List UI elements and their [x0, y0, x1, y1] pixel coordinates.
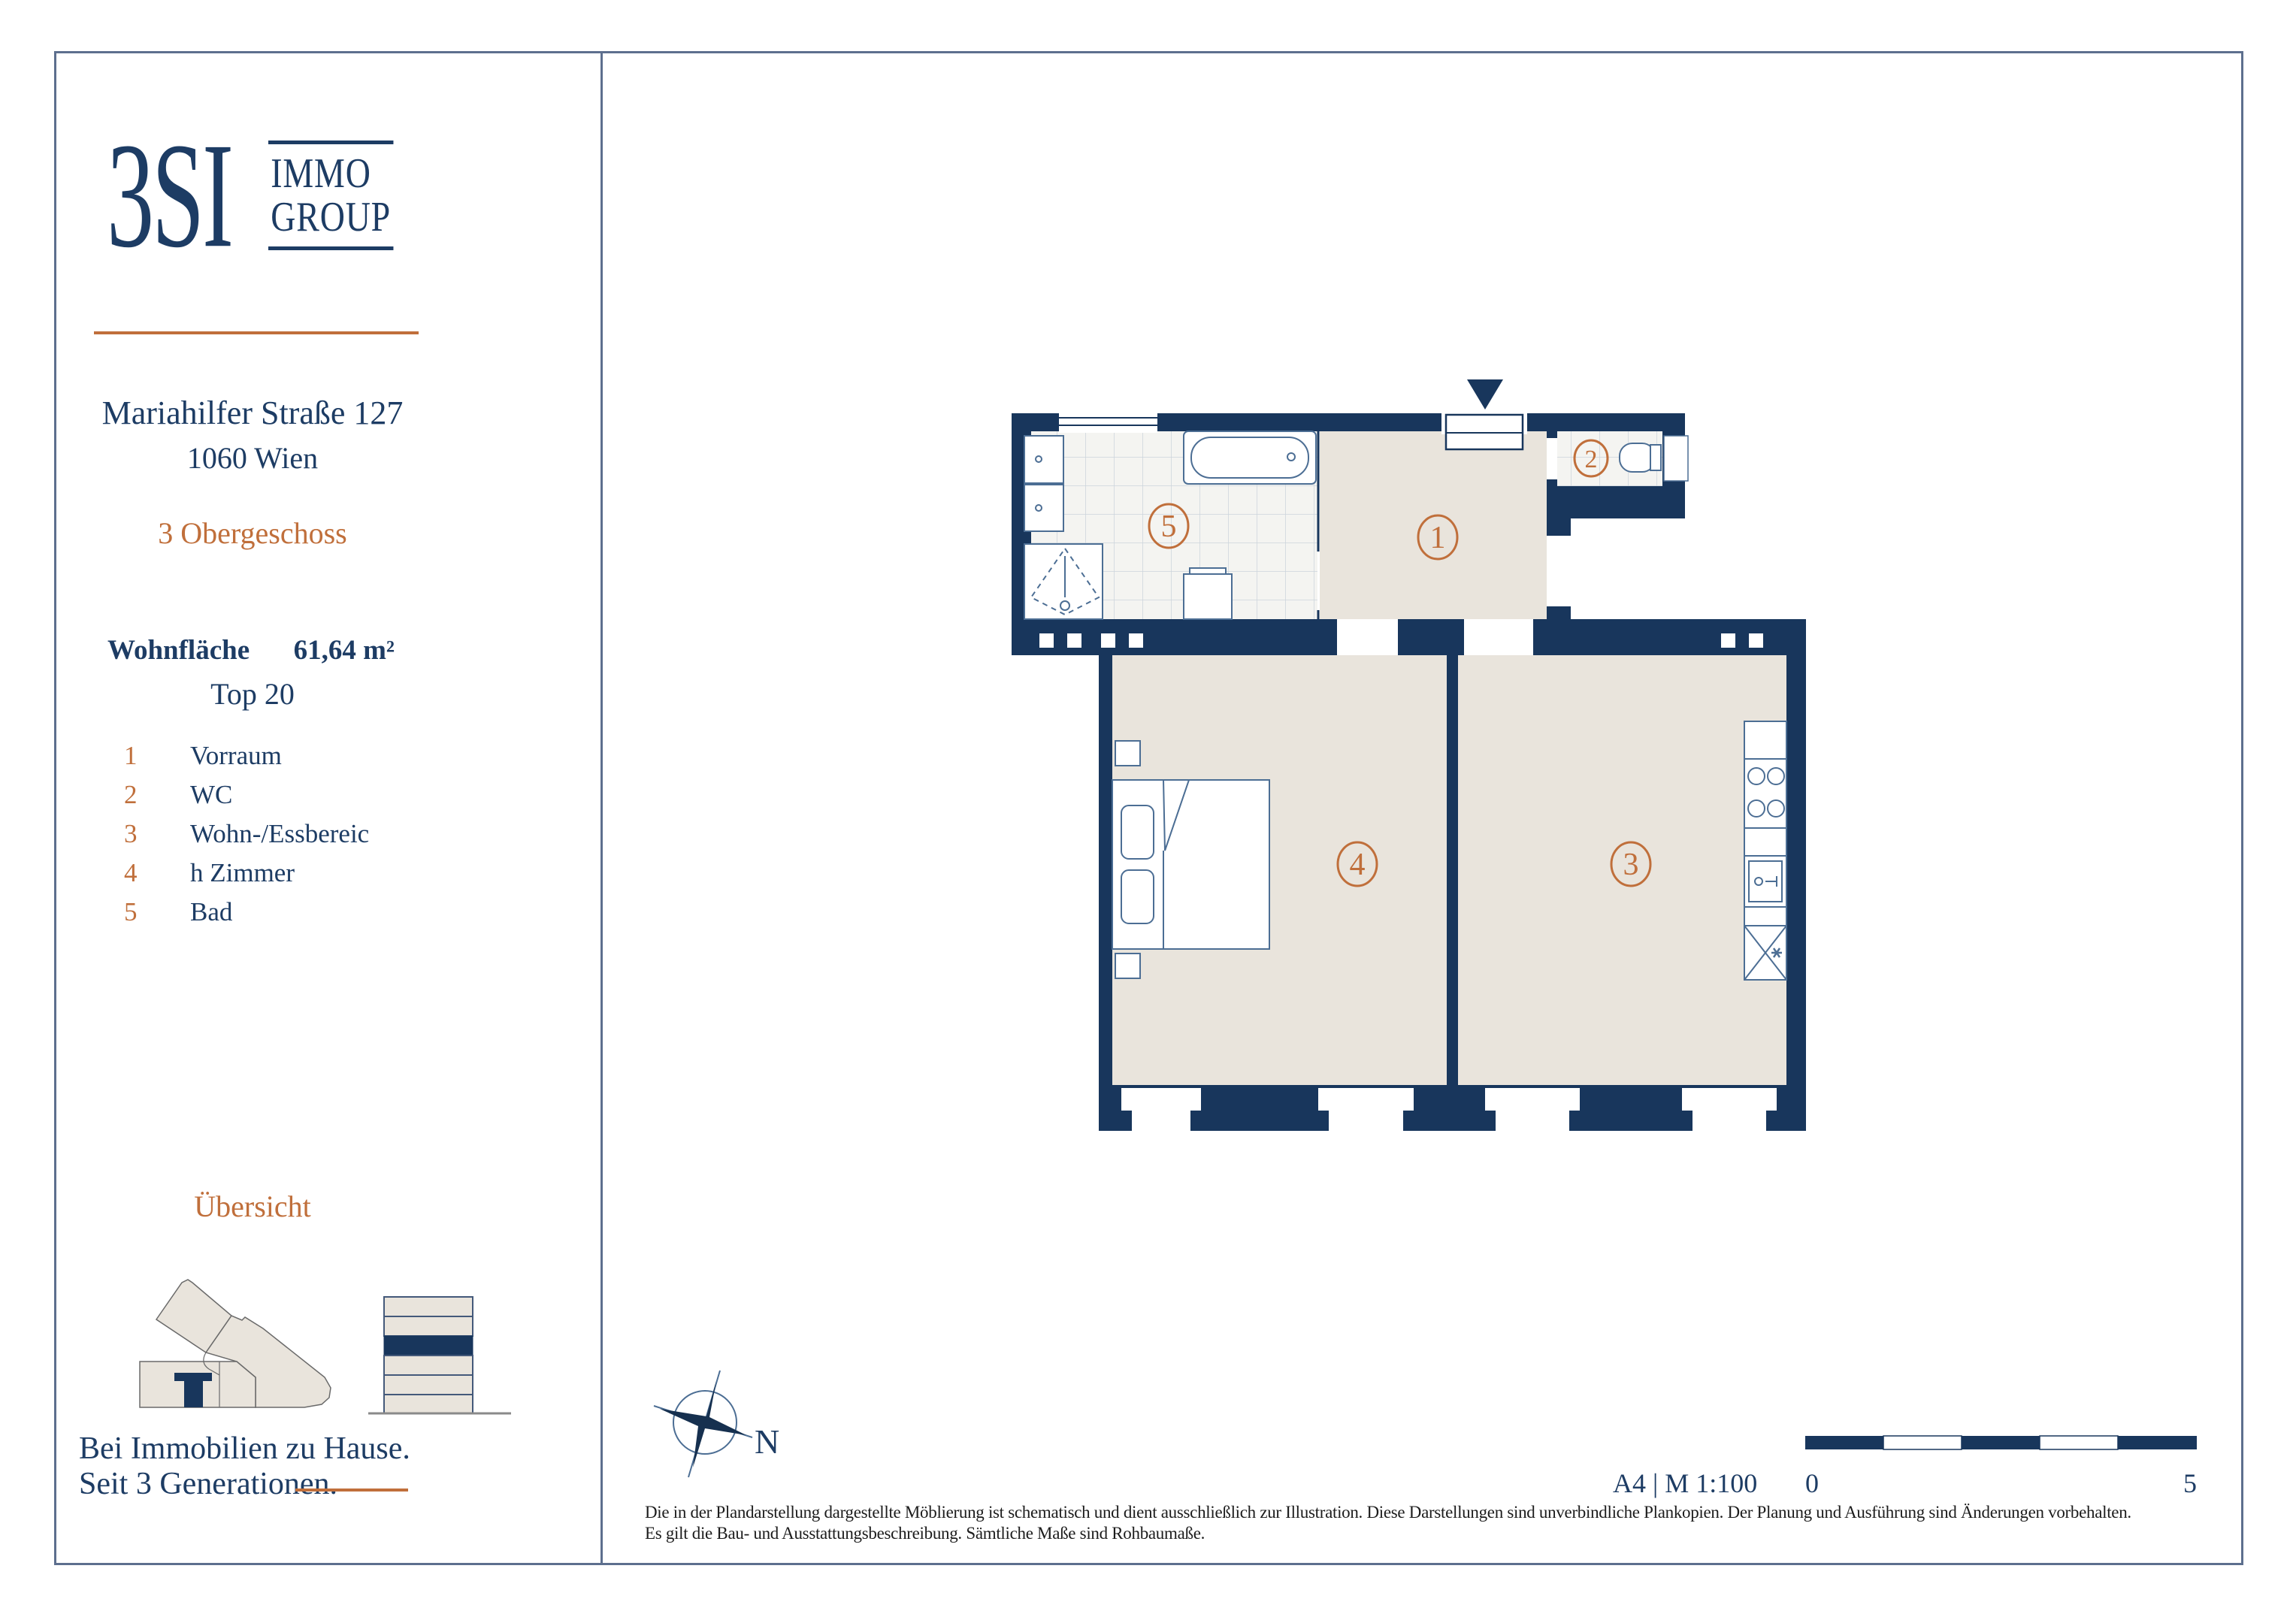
window-reveal	[1569, 1111, 1580, 1131]
window-reveal	[1190, 1111, 1201, 1131]
washbasin-cabinet	[1024, 436, 1063, 483]
room-3-label: 3	[1623, 848, 1639, 882]
disclaimer-line-1: Die in der Plandarstellung dargestellte …	[645, 1503, 2131, 1522]
floorplan-svg: 1 2 3 4 5 N A4 | M 1:100 0 5	[0, 0, 2296, 1623]
scale-segment	[1883, 1436, 1962, 1449]
pillow	[1121, 870, 1154, 923]
door-opening-wc	[1547, 438, 1557, 479]
scale-format-label: A4 | M 1:100	[1613, 1468, 1757, 1498]
cabinet-handle	[1036, 505, 1042, 511]
washing-machine	[1184, 574, 1232, 619]
scale-end-label: 5	[2183, 1468, 2197, 1498]
scale-segment	[2118, 1436, 2197, 1449]
pillow	[1121, 805, 1154, 859]
vent	[1721, 633, 1735, 648]
window	[1121, 1088, 1201, 1131]
vent	[1129, 633, 1143, 648]
room-4-label: 4	[1350, 848, 1366, 882]
disclaimer-line-2: Es gilt die Bau- und Ausstattungsbeschre…	[645, 1524, 1205, 1543]
nightstand	[1115, 741, 1140, 766]
wall	[1099, 655, 1112, 1131]
recess-area	[1571, 518, 1685, 619]
door-opening-recess	[1547, 536, 1571, 606]
toilet-tank	[1650, 445, 1661, 470]
window	[1059, 412, 1157, 433]
room-1-label: 1	[1430, 521, 1446, 555]
scale-segment	[2040, 1436, 2118, 1449]
room-wohnessbereich-floor	[1458, 655, 1786, 1085]
washing-machine-lid	[1190, 568, 1226, 574]
vent	[1039, 633, 1054, 648]
cabinet-handle	[1036, 456, 1042, 462]
nightstand	[1115, 954, 1140, 978]
wall	[1547, 486, 1685, 518]
shower-drain	[1060, 601, 1069, 610]
scale-start-label: 0	[1805, 1468, 1819, 1498]
window	[1485, 1088, 1580, 1131]
wall	[1157, 413, 1441, 431]
window	[1318, 1088, 1414, 1131]
toilet	[1620, 443, 1655, 472]
compass-north-label: N	[755, 1422, 779, 1461]
window-reveal	[1766, 1111, 1777, 1131]
window-reveal	[1403, 1111, 1414, 1131]
vent	[1101, 633, 1115, 648]
entrance-arrow-icon	[1467, 379, 1503, 410]
washbasin-cabinet	[1024, 485, 1063, 531]
bathtub-drain	[1287, 453, 1295, 461]
room-2-label: 2	[1585, 446, 1598, 473]
scale-bar: A4 | M 1:100 0 5	[1613, 1436, 2197, 1498]
floorplan-sheet: 3SI IMMO GROUP Mariahilfer Straße 127 10…	[0, 0, 2296, 1623]
scale-segment	[1805, 1436, 1883, 1449]
window-reveal	[1485, 1111, 1496, 1131]
wall-room-divider	[1447, 655, 1458, 1085]
wall	[1786, 655, 1806, 1131]
vent	[1749, 633, 1763, 648]
scale-segment	[1962, 1436, 2040, 1449]
room-5-label: 5	[1161, 509, 1177, 544]
window-reveal	[1318, 1111, 1329, 1131]
compass-rose: N	[654, 1371, 779, 1477]
window-reveal	[1121, 1111, 1132, 1131]
door-opening-room4	[1337, 619, 1398, 655]
door-opening-room3	[1464, 619, 1533, 655]
kitchen-unit	[1744, 721, 1786, 980]
window-reveal	[1682, 1111, 1693, 1131]
vent	[1067, 633, 1081, 648]
window	[1682, 1088, 1777, 1131]
wc-window-niche	[1664, 436, 1688, 481]
wall	[1527, 413, 1685, 431]
